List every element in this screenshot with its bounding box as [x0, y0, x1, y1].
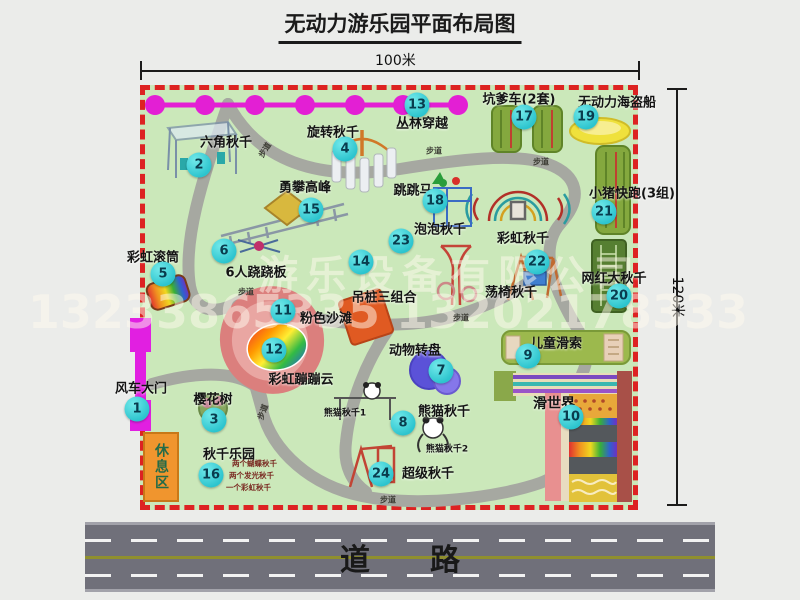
footpath-label: 步道: [533, 157, 549, 168]
attraction-7-badge: 7: [429, 359, 454, 384]
attraction-9-badge: 9: [516, 344, 541, 369]
attraction-1-label: 风车大门: [115, 378, 167, 397]
footpath-label: 步道: [238, 287, 254, 298]
attraction-16-badge: 16: [199, 463, 224, 488]
attraction-5-label: 彩虹滚筒: [127, 247, 179, 266]
attraction-1-badge: 1: [125, 397, 150, 422]
attraction-24-badge: 24: [369, 462, 394, 487]
swing-park-detail-3: 一个彩虹秋千: [226, 482, 271, 493]
road-label: 道路: [85, 525, 715, 589]
attraction-12-badge: 12: [262, 338, 287, 363]
attraction-6-badge: 6: [212, 239, 237, 264]
attraction-2-label: 六角秋千: [200, 132, 252, 151]
rainbow-swing-label: 彩虹秋千: [497, 228, 549, 247]
attraction-11-badge: 11: [271, 299, 296, 324]
footpath-label: 步道: [426, 146, 442, 157]
attraction-23-badge: 23: [389, 229, 414, 254]
dimension-label-right: 120米: [668, 277, 688, 318]
attraction-20-badge: 20: [607, 284, 632, 309]
attraction-11-label: 粉色沙滩: [300, 308, 352, 327]
dimension-tick: [667, 88, 687, 90]
attraction-21-badge: 21: [592, 200, 617, 225]
attraction-4-badge: 4: [333, 137, 358, 162]
attraction-22-label: 荡椅秋千: [485, 282, 537, 301]
attraction-15-badge: 15: [299, 198, 324, 223]
park-layout-screenshot: 无动力游乐园平面布局图 100米 120米: [0, 0, 800, 600]
rest-area-box: 休息区: [143, 432, 179, 502]
attraction-24-label: 超级秋千: [402, 463, 454, 482]
attraction-18-badge: 18: [423, 189, 448, 214]
attraction-3-label: 樱花树: [193, 389, 232, 408]
attraction-19-badge: 19: [574, 105, 599, 130]
attraction-12-label: 彩虹蹦蹦云: [268, 369, 333, 388]
dimension-label-top: 100米: [375, 50, 416, 70]
dimension-tick: [638, 61, 640, 80]
attraction-8-label: 熊猫秋千: [418, 401, 470, 420]
swing-park-detail-2: 两个发光秋千: [229, 470, 274, 481]
dimension-tick: [667, 504, 687, 506]
swing-park-detail-1: 两个蝴蝶秋千: [232, 458, 277, 469]
attraction-14-label: 吊桩三组合: [351, 287, 416, 306]
page-title: 无动力游乐园平面布局图: [279, 8, 522, 44]
attraction-13-badge: 13: [405, 93, 430, 118]
attraction-14-badge: 14: [349, 250, 374, 275]
attraction-10-badge: 10: [559, 405, 584, 430]
dimension-line-top: [140, 70, 640, 72]
attraction-3-badge: 3: [202, 408, 227, 433]
dimension-tick: [140, 61, 142, 80]
attraction-2-badge: 2: [187, 153, 212, 178]
footpath-label: 步道: [380, 495, 396, 506]
attraction-17-badge: 17: [512, 105, 537, 130]
attraction-8-badge: 8: [391, 411, 416, 436]
road: 道路: [85, 522, 715, 592]
attraction-7-label: 动物转盘: [389, 340, 441, 359]
footpath-label: 步道: [453, 313, 469, 324]
attraction-23-label: 泡泡秋千: [414, 219, 466, 238]
panda-swing-1-label: 熊猫秋千1: [324, 406, 366, 419]
rest-area-label: 休息区: [151, 443, 171, 491]
attraction-15-label: 勇攀高峰: [279, 177, 331, 196]
panda-swing-2-label: 熊猫秋千2: [426, 442, 468, 455]
attraction-5-badge: 5: [151, 262, 176, 287]
attraction-22-badge: 22: [525, 250, 550, 275]
attraction-6-label: 6人跷跷板: [225, 262, 286, 281]
